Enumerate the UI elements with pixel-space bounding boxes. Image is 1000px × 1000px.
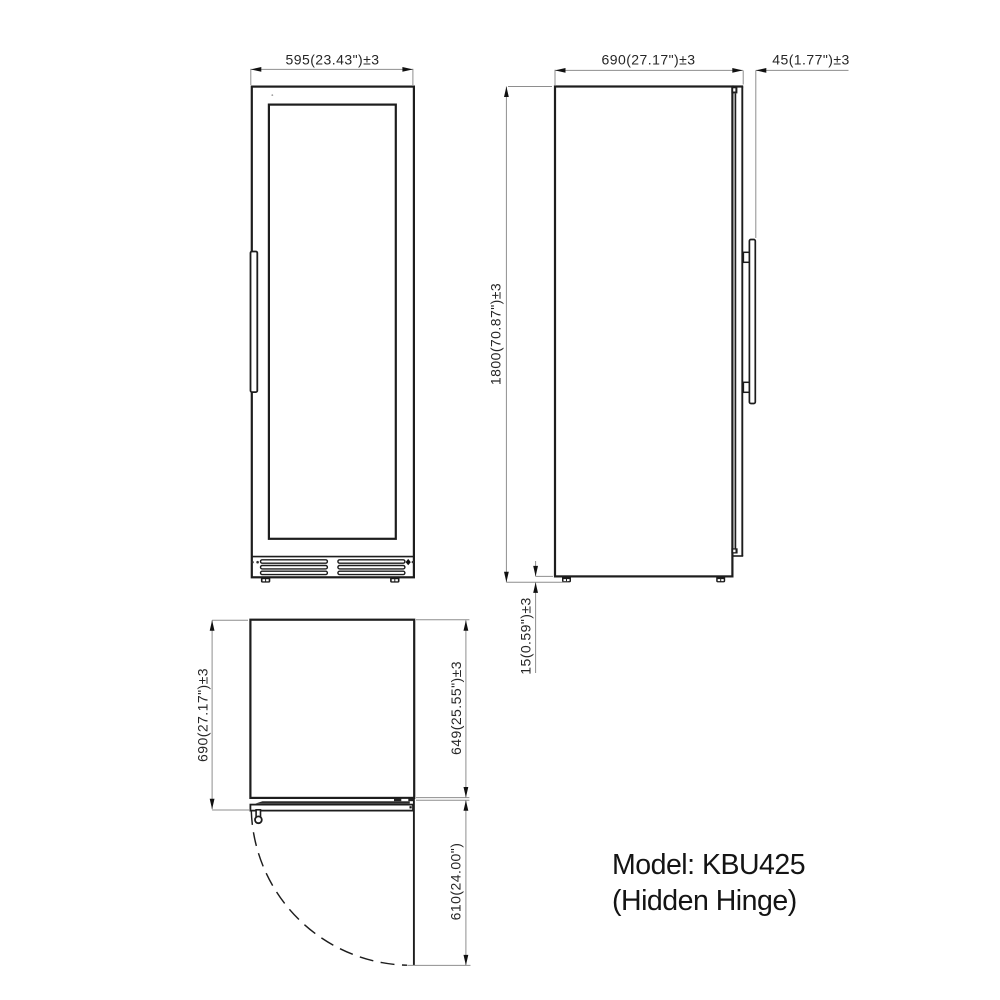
svg-text:Model: KBU425: Model: KBU425 (612, 849, 805, 881)
svg-text:45(1.77")±3: 45(1.77")±3 (772, 52, 850, 68)
svg-text:1800(70.87")±3: 1800(70.87")±3 (488, 283, 504, 385)
svg-text:649(25.55")±3: 649(25.55")±3 (448, 661, 464, 755)
svg-text:595(23.43")±3: 595(23.43")±3 (285, 52, 379, 68)
svg-text:(Hidden Hinge): (Hidden Hinge) (612, 885, 797, 917)
svg-text:15(0.59")±3: 15(0.59")±3 (518, 597, 534, 675)
svg-text:610(24.00"): 610(24.00") (448, 843, 464, 921)
svg-text:690(27.17")±3: 690(27.17")±3 (195, 668, 211, 762)
svg-text:690(27.17")±3: 690(27.17")±3 (601, 52, 695, 68)
